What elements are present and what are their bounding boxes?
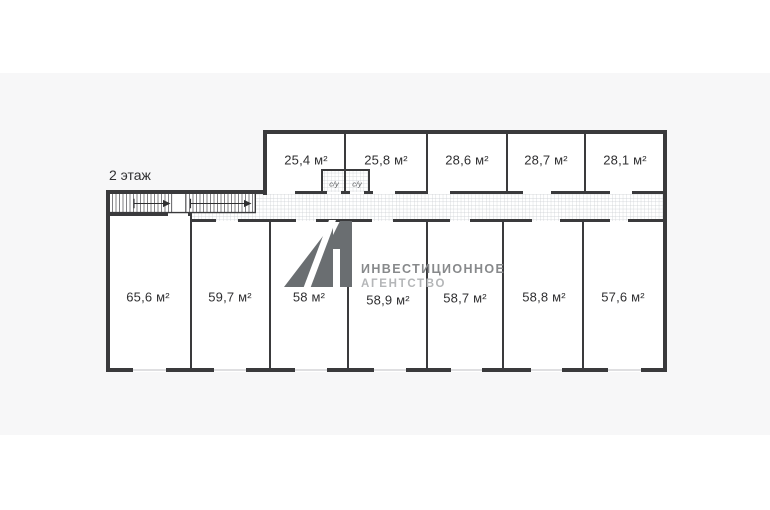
floor-label: 2 этаж [109,167,151,183]
bottom-room-7-area: 57,6 м² [601,290,645,305]
bottom-room-2-area: 59,7 м² [208,290,252,305]
top-room-2-area: 25,8 м² [364,153,408,168]
bottom-room-3-area: 58 м² [293,290,325,305]
top-room-4-area: 28,7 м² [524,153,568,168]
top-room-3-area: 28,6 м² [445,153,489,168]
floorplan-page: 2 этаж 25,4 м² 25,8 м² 28,6 м² 28,7 м² 2… [0,0,770,510]
bottom-room-1-area: 65,6 м² [126,290,170,305]
watermark-agency-line1: ИНВЕСТИЦИОННОЕ [361,262,505,276]
floor-plan-drawing [0,0,770,510]
top-room-1-area: 25,4 м² [284,153,328,168]
bathroom-1-label: с/у [329,180,339,189]
top-room-5-area: 28,1 м² [603,153,647,168]
bathroom-2-label: с/у [352,180,362,189]
staircase [108,194,256,213]
bottom-room-4-area: 58,9 м² [366,293,410,308]
bottom-room-5-area: 58,7 м² [443,291,487,306]
bottom-room-6-area: 58,8 м² [522,290,566,305]
watermark-agency-line2: АГЕНТСТВО [361,278,446,290]
